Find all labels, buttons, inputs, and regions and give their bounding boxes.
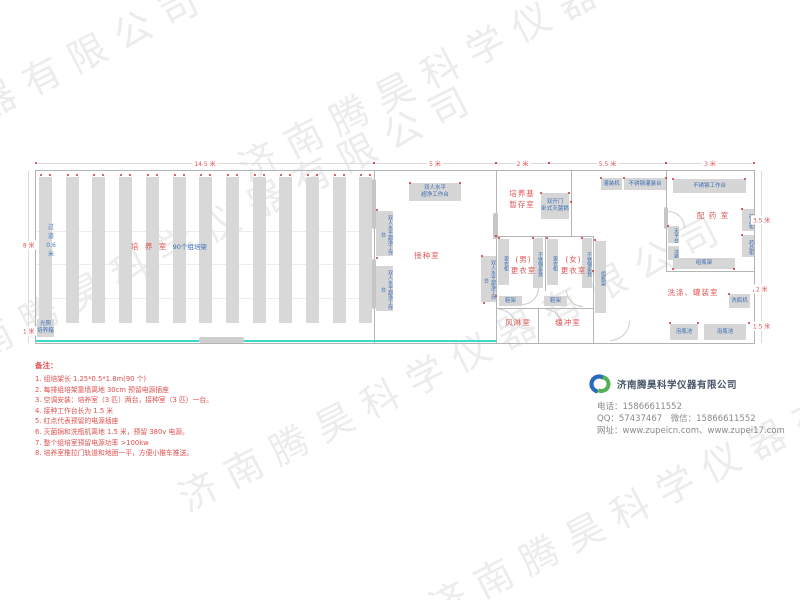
power-outlet-dot — [376, 257, 378, 259]
power-outlet-dot — [748, 322, 750, 324]
culture-rack-bar — [306, 177, 319, 323]
furniture-soak-pool-2: 泡瓶池 — [704, 324, 746, 340]
power-outlet-dot — [672, 268, 674, 270]
power-outlet-dot — [728, 293, 730, 295]
power-outlet-dot — [672, 178, 674, 180]
power-outlet-dot — [183, 174, 185, 176]
notes-block: 备注： 1. 组培架长 1.25*0.5*1.8m(90 个)2. 每排组培架靠… — [35, 360, 305, 459]
furniture-shoe-rack-2: 鞋架 — [544, 296, 567, 306]
culture-rack-bar — [279, 177, 292, 323]
power-outlet-dot — [236, 174, 238, 176]
power-outlet-dot — [129, 174, 131, 176]
power-outlet-dot — [459, 182, 461, 184]
wall-segment — [593, 236, 594, 343]
dimension-top: 14.5 米 — [36, 163, 374, 164]
power-outlet-dot — [495, 235, 497, 237]
power-outlet-dot — [360, 174, 362, 176]
power-outlet-dot — [280, 174, 282, 176]
power-outlet-dot — [594, 239, 596, 241]
furniture-bottle-washer: 洗瓶机 — [729, 294, 750, 308]
power-outlet-dot — [568, 192, 570, 194]
wall-segment — [545, 236, 546, 291]
culture-rack-bar — [333, 177, 346, 323]
power-outlet-dot — [147, 174, 149, 176]
dimension-label: 8 米 — [21, 240, 37, 249]
note-item: 5. 红点代表预留的电源插座 — [35, 416, 305, 427]
dimension-label: 14.5 米 — [192, 159, 217, 168]
notes-title: 备注： — [35, 360, 305, 371]
dimension-label: 5 米 — [427, 159, 443, 168]
furniture-autoclave: 双开门 卧式灭菌锅 — [541, 193, 569, 219]
door-swing-arc — [566, 290, 583, 307]
power-outlet-dot — [67, 174, 69, 176]
room-label-men-changing-room: (男) 更衣室 — [507, 255, 540, 277]
watermark-text: 济南腾昊科学仪器有限公司 — [418, 305, 800, 600]
dimension-label: 2 米 — [515, 159, 531, 168]
power-outlet-dot — [76, 174, 78, 176]
dimension-label: 1.5 米 — [751, 321, 772, 330]
power-outlet-dot — [369, 174, 371, 176]
culture-rack-bar — [92, 177, 105, 323]
furniture-balance-table: 天平台 — [668, 226, 679, 243]
dimension-top: 2 米 — [496, 163, 549, 164]
dimension-label: 3.5 米 — [751, 216, 772, 225]
room-label-buffer-room: 缓冲室 — [545, 318, 591, 329]
power-outlet-dot — [49, 174, 51, 176]
culture-rack-bar — [359, 177, 372, 323]
note-item: 2. 每排组培架靠墙离地 30cm 预留电源插座 — [35, 385, 305, 396]
power-outlet-dot — [227, 174, 229, 176]
dimension-tick — [665, 162, 667, 164]
power-outlet-dot — [263, 174, 265, 176]
power-outlet-dot — [623, 177, 625, 179]
power-outlet-dot — [174, 174, 176, 176]
floorplan-page: 济南腾昊科学仪器有限公司济南腾昊科学仪器有限公司济南腾昊科学仪器有限公司济南腾昊… — [0, 0, 800, 600]
dimension-top: 5.5 米 — [549, 163, 666, 164]
furniture-filling-machine: 灌装机 — [601, 178, 622, 190]
power-outlet-dot — [532, 237, 534, 239]
room-label-washing-filling-room: 洗涤、罐装室 — [656, 288, 730, 299]
dimension-right: 3.5 米 — [761, 171, 762, 269]
culture-rack-count-text: 90个组培架 — [173, 243, 207, 251]
furniture-clean-bench-top: 双人水平 超净工作台 — [409, 183, 461, 201]
culture-room-label-text: 培 养 室 — [131, 242, 173, 251]
dimension-label: 1 米 — [21, 326, 37, 335]
note-item: 4. 接种工作台长为 1.5 米 — [35, 406, 305, 417]
furniture-bottle-rack-horizontal: 组瓶架 — [673, 258, 735, 269]
power-outlet-dot — [120, 174, 122, 176]
room-label-air-shower-room: 风淋室 — [497, 318, 539, 329]
power-outlet-dot — [540, 192, 542, 194]
dimension-label: 2 米 — [754, 284, 770, 293]
power-outlet-dot — [546, 237, 548, 239]
power-outlet-dot — [209, 174, 211, 176]
power-outlet-dot — [481, 255, 483, 257]
power-outlet-dot — [741, 234, 743, 236]
power-outlet-dot — [667, 225, 669, 227]
power-outlet-dot — [200, 174, 202, 176]
power-outlet-dot — [156, 174, 158, 176]
dimension-right: 2 米 — [761, 269, 762, 308]
furniture-medicine-cabinet-2: 药品柜 — [742, 235, 754, 257]
door-swing-arc — [522, 288, 539, 305]
power-outlet-dot — [289, 174, 291, 176]
company-contact-line: 网址：www.zupeicn.com、www.zupei17.com — [597, 426, 793, 438]
furniture-work-table: 不锈钢工作台 — [673, 179, 746, 193]
power-outlet-dot — [409, 182, 411, 184]
wall-segment — [571, 171, 572, 236]
company-contacts: 电话：15866611552QQ：57437467 微信：15866611552… — [597, 402, 793, 437]
power-outlet-dot — [741, 208, 743, 210]
furniture-soak-pool-1: 泡瓶池 — [670, 324, 698, 340]
dimension-top: 5 米 — [374, 163, 496, 164]
room-label-dispensing-room: 配 药 室 — [681, 211, 745, 222]
dimension-left: 8 米 — [28, 171, 29, 318]
company-header: 济南腾昊科学仪器有限公司 — [588, 372, 793, 396]
sliding-door-track-line — [36, 340, 496, 342]
power-outlet-dot — [592, 270, 594, 272]
notes-list: 1. 组培架长 1.25*0.5*1.8m(90 个)2. 每排组培架靠墙离地 … — [35, 374, 305, 459]
company-contact-line: 电话：15866611552 — [597, 402, 793, 414]
sliding-door-bar — [199, 337, 244, 343]
power-outlet-dot — [570, 201, 572, 203]
note-item: 6. 灭菌锅和洗瓶机离地 1.5 米，预留 380v 电源。 — [35, 427, 305, 438]
company-contact-line: QQ：57437467 微信：15866611552 — [597, 414, 793, 426]
power-outlet-dot — [316, 174, 318, 176]
room-label-inoculation-room: 接种室 — [406, 251, 448, 262]
dimension-label: 3 米 — [702, 159, 718, 168]
note-item: 1. 组培架长 1.25*0.5*1.8m(90 个) — [35, 374, 305, 385]
dimension-top: 3 米 — [666, 163, 754, 164]
power-outlet-dot — [343, 174, 345, 176]
power-outlet-dot — [102, 174, 104, 176]
room-label-women-changing-room: (女) 更衣室 — [557, 255, 590, 277]
dimension-label: 5.5 米 — [597, 159, 618, 168]
furniture-clean-bench-left-2: 双人水平超净工作台 — [376, 266, 393, 311]
dimension-tick — [495, 162, 497, 164]
culture-rack-bar — [66, 177, 79, 323]
power-outlet-dot — [600, 177, 602, 179]
floorplan-drawing: 双人水平 超净工作台双人水平超净工作台双人水平超净工作台双人水平超净工作台双开门… — [35, 170, 755, 344]
dimension-left: 1 米 — [28, 318, 29, 343]
power-outlet-dot — [733, 268, 735, 270]
note-item: 7. 整个组培室预留电源功率 >100kw — [35, 438, 305, 449]
power-outlet-dot — [669, 322, 671, 324]
dimension-right: 1.5 米 — [761, 308, 762, 343]
furniture-clean-bench-left-1: 双人水平超净工作台 — [376, 211, 393, 256]
culture-rack-bar — [253, 177, 266, 323]
power-outlet-dot — [307, 174, 309, 176]
power-outlet-dot — [498, 237, 500, 239]
power-outlet-dot — [495, 295, 497, 297]
room-label-culture-room: 培 养 室 90个组培架 — [131, 241, 207, 252]
dimension-tick — [548, 162, 550, 164]
wall-segment — [666, 227, 667, 271]
note-item: 8. 培养室推拉门轨道和地面一平，方便小推车推送。 — [35, 448, 305, 459]
furniture-bottle-rack-vertical: 组瓶架 — [595, 241, 606, 313]
furniture-clean-bench-right: 双人水平超净工作台 — [481, 256, 496, 302]
company-name: 济南腾昊科学仪器有限公司 — [617, 377, 737, 391]
culture-rack-bar — [226, 177, 239, 323]
company-logo-icon — [588, 372, 612, 396]
power-outlet-dot — [40, 174, 42, 176]
power-outlet-dot — [581, 237, 583, 239]
company-block: 济南腾昊科学仪器有限公司 电话：15866611552QQ：57437467 微… — [588, 372, 793, 437]
power-outlet-dot — [376, 209, 378, 211]
note-item: 3. 空调安装：培养室（3 匹）两台，接种室（3 匹）一台。 — [35, 395, 305, 406]
power-outlet-dot — [334, 174, 336, 176]
power-outlet-dot — [697, 322, 699, 324]
room-label-medium-storage-room: 培养基 暂存室 — [500, 189, 544, 211]
power-outlet-dot — [483, 302, 485, 304]
aisle-width-label: 过 道 0.6 米 — [44, 223, 58, 259]
power-outlet-dot — [93, 174, 95, 176]
power-outlet-dot — [254, 174, 256, 176]
power-outlet-dot — [665, 177, 667, 179]
furniture-filling-table: 不锈钢灌装台 — [624, 178, 666, 190]
wall-segment — [496, 308, 594, 309]
door-swing-arc — [610, 321, 630, 341]
furniture-light-incubator: 光照 培养箱 — [37, 319, 54, 337]
wall-segment — [666, 271, 754, 272]
power-outlet-dot — [744, 178, 746, 180]
furniture-shoe-rack-1: 鞋架 — [499, 296, 522, 306]
dimension-tick — [35, 162, 37, 164]
dimension-tick — [373, 162, 375, 164]
dimension-tick — [753, 162, 755, 164]
